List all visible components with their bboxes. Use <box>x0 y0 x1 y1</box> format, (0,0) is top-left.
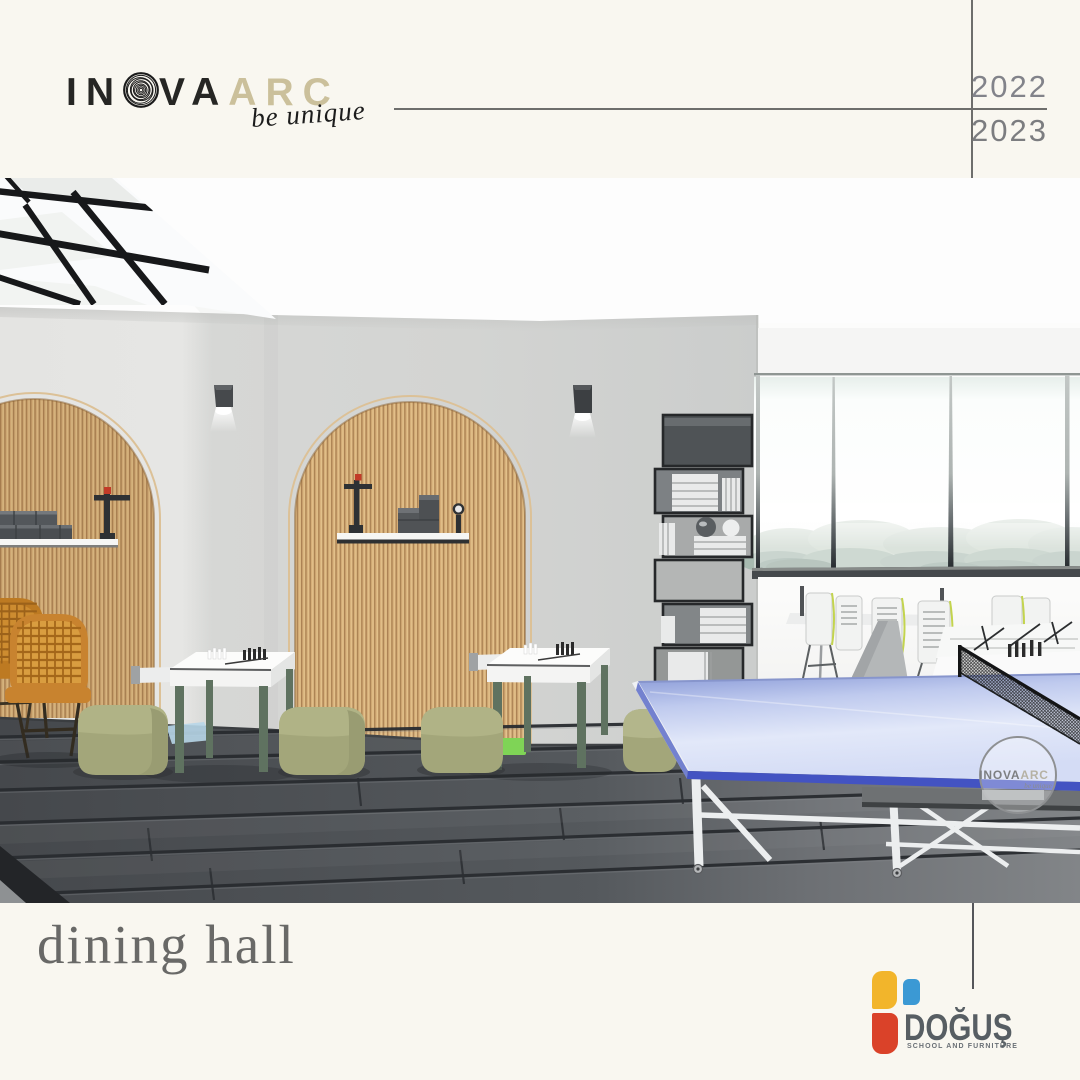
svg-text:INOVAARC: INOVAARC <box>979 768 1049 782</box>
svg-text:be unique: be unique <box>1024 782 1051 790</box>
